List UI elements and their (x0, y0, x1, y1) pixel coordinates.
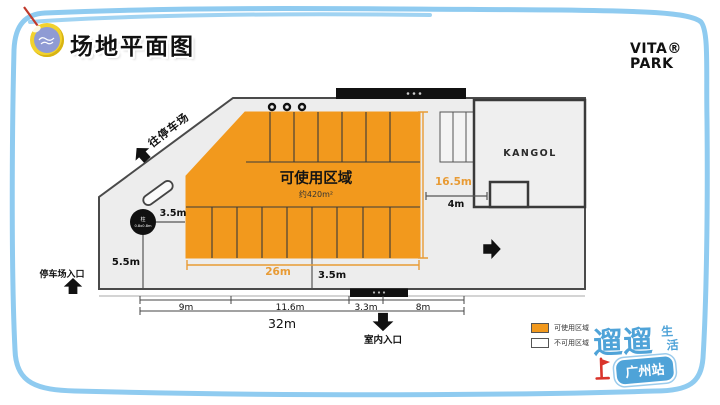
legend-label-unusable: 不可用区域 (554, 338, 589, 348)
indoor-entrance-bar (350, 289, 408, 298)
parking-entrance-arrow-icon (64, 278, 82, 294)
brand-block: VITA® PARK (630, 42, 682, 72)
legend-swatch-unusable (531, 338, 549, 348)
dim-left-height: 5.5m (112, 257, 140, 268)
dim-column-gap: 3.5m (160, 208, 187, 219)
legend: 可使用区域 不可用区域 (531, 323, 589, 353)
brand-line-1: VITA® (630, 42, 682, 57)
brand-line-2: PARK (630, 57, 682, 72)
dim-total-width: 32m (268, 316, 296, 331)
liuliu-logo-sub-bottom: 活 (666, 336, 679, 353)
top-black-bar (336, 88, 466, 99)
floor-plan-page: 可使用区域 约420m² KANGOL 柱 0.8x0.8m 3.5m 5 (0, 0, 720, 405)
legend-row-usable: 可使用区域 (531, 323, 589, 333)
indoor-entrance-label: 室内入口 (364, 334, 402, 346)
legend-swatch-usable (531, 323, 549, 333)
dim-area-width: 26m (265, 266, 291, 278)
usable-area-label: 可使用区域 (280, 169, 353, 187)
dim-area-height: 16.5m (435, 176, 472, 188)
dim-corridor: 4m (448, 199, 465, 210)
red-flag-icon (594, 355, 615, 386)
page-title: 场地平面图 (70, 27, 195, 61)
liuliu-logo: 遛遛 生 活 广州站 (591, 316, 718, 400)
kangol-annex (490, 182, 528, 207)
dim-bottom-gap: 3.5m (318, 270, 346, 281)
column-marker: 柱 0.8x0.8m (130, 209, 156, 235)
legend-row-unusable: 不可用区域 (531, 338, 589, 348)
round-columns (268, 103, 306, 111)
column-label: 柱 (140, 216, 145, 223)
kangol-label: KANGOL (503, 148, 557, 159)
station-badge: 广州站 (615, 356, 674, 385)
column-size: 0.8x0.8m (134, 224, 152, 228)
usable-area-size: 约420m² (299, 189, 333, 199)
parking-entrance-label: 停车场入口 (39, 268, 84, 280)
yoyo-badge-icon (30, 23, 64, 57)
indoor-entrance-arrow-icon (373, 313, 394, 331)
legend-label-usable: 可使用区域 (554, 323, 589, 333)
